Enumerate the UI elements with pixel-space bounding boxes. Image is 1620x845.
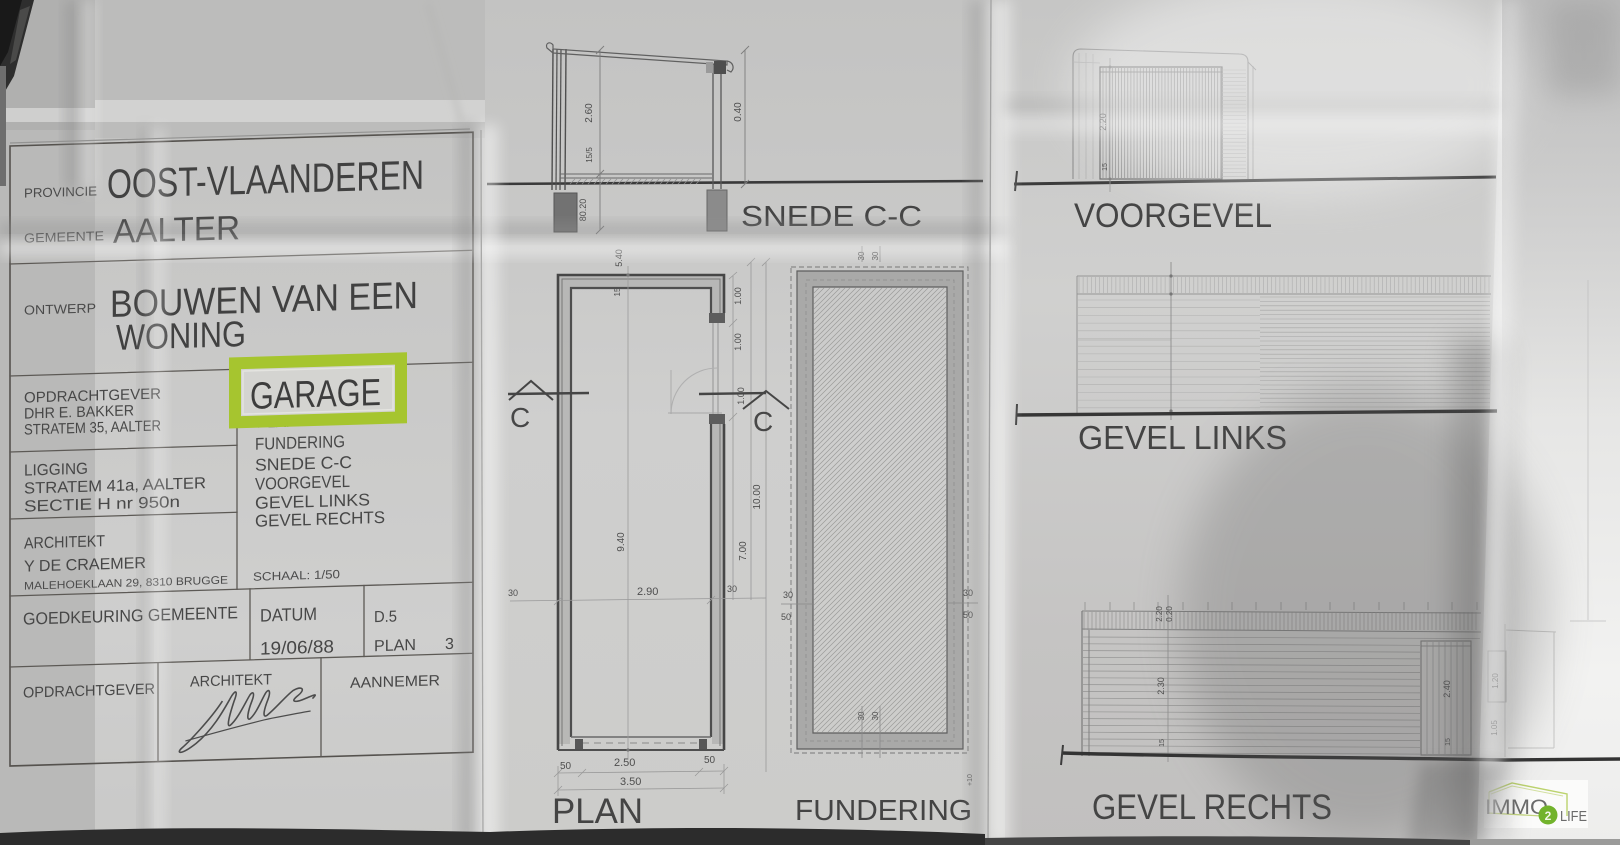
svg-text:1.00: 1.00: [736, 387, 746, 405]
svg-text:0.20: 0.20: [1165, 606, 1174, 622]
svg-text:ARCHITEKT: ARCHITEKT: [190, 671, 272, 690]
svg-text:30: 30: [857, 711, 866, 720]
svg-text:10.00: 10.00: [752, 484, 763, 509]
svg-text:0.40: 0.40: [733, 102, 744, 122]
svg-text:2.30: 2.30: [1156, 677, 1166, 695]
svg-text:30: 30: [727, 584, 737, 594]
svg-text:FUNDERING: FUNDERING: [255, 432, 345, 454]
svg-text:ARCHITEKT: ARCHITEKT: [24, 533, 105, 552]
svg-text:2.60: 2.60: [584, 103, 595, 123]
svg-text:AANNEMER: AANNEMER: [350, 672, 440, 692]
svg-text:C: C: [753, 406, 773, 437]
svg-text:3: 3: [445, 636, 454, 653]
svg-text:Y DE CRAEMER: Y DE CRAEMER: [24, 555, 146, 576]
svg-text:9.40: 9.40: [616, 532, 627, 552]
svg-text:GEVEL RECHTS: GEVEL RECHTS: [255, 508, 385, 531]
svg-text:80.20: 80.20: [578, 199, 588, 222]
svg-text:D.5: D.5: [374, 609, 397, 627]
svg-text:30: 30: [871, 711, 880, 720]
svg-text:WONING: WONING: [116, 313, 246, 358]
svg-text:LIGGING: LIGGING: [24, 461, 88, 480]
svg-text:1.00: 1.00: [733, 287, 743, 305]
svg-text:7.00: 7.00: [738, 541, 749, 561]
svg-text:50: 50: [704, 755, 716, 766]
svg-text:50: 50: [560, 761, 572, 772]
svg-text:19/06/88: 19/06/88: [260, 636, 334, 658]
svg-text:2.50: 2.50: [614, 757, 635, 769]
svg-text:1.00: 1.00: [733, 333, 743, 351]
svg-text:2.20: 2.20: [1155, 606, 1164, 622]
svg-text:GARAGE: GARAGE: [250, 372, 381, 418]
svg-text:SCHAAL: 1/50: SCHAAL: 1/50: [253, 567, 340, 584]
svg-text:C: C: [510, 402, 530, 433]
svg-text:15/5: 15/5: [585, 147, 594, 163]
svg-text:FUNDERING: FUNDERING: [795, 795, 972, 827]
svg-text:50: 50: [781, 612, 791, 622]
svg-text:15: 15: [613, 287, 622, 296]
svg-text:30: 30: [508, 588, 518, 598]
svg-text:VOORGEVEL: VOORGEVEL: [1074, 197, 1272, 235]
svg-text:15: 15: [1159, 739, 1166, 747]
svg-text:15: 15: [1102, 163, 1109, 171]
svg-text:LIFE: LIFE: [1560, 808, 1587, 825]
svg-text:DATUM: DATUM: [260, 604, 317, 626]
svg-text:PLAN: PLAN: [374, 637, 416, 655]
svg-text:2.90: 2.90: [637, 586, 658, 598]
svg-text:ONTWERP: ONTWERP: [24, 300, 96, 317]
svg-text:2: 2: [1545, 809, 1552, 823]
svg-text:30: 30: [783, 590, 793, 600]
svg-text:3.50: 3.50: [620, 776, 641, 788]
svg-text:PLAN: PLAN: [552, 792, 643, 831]
